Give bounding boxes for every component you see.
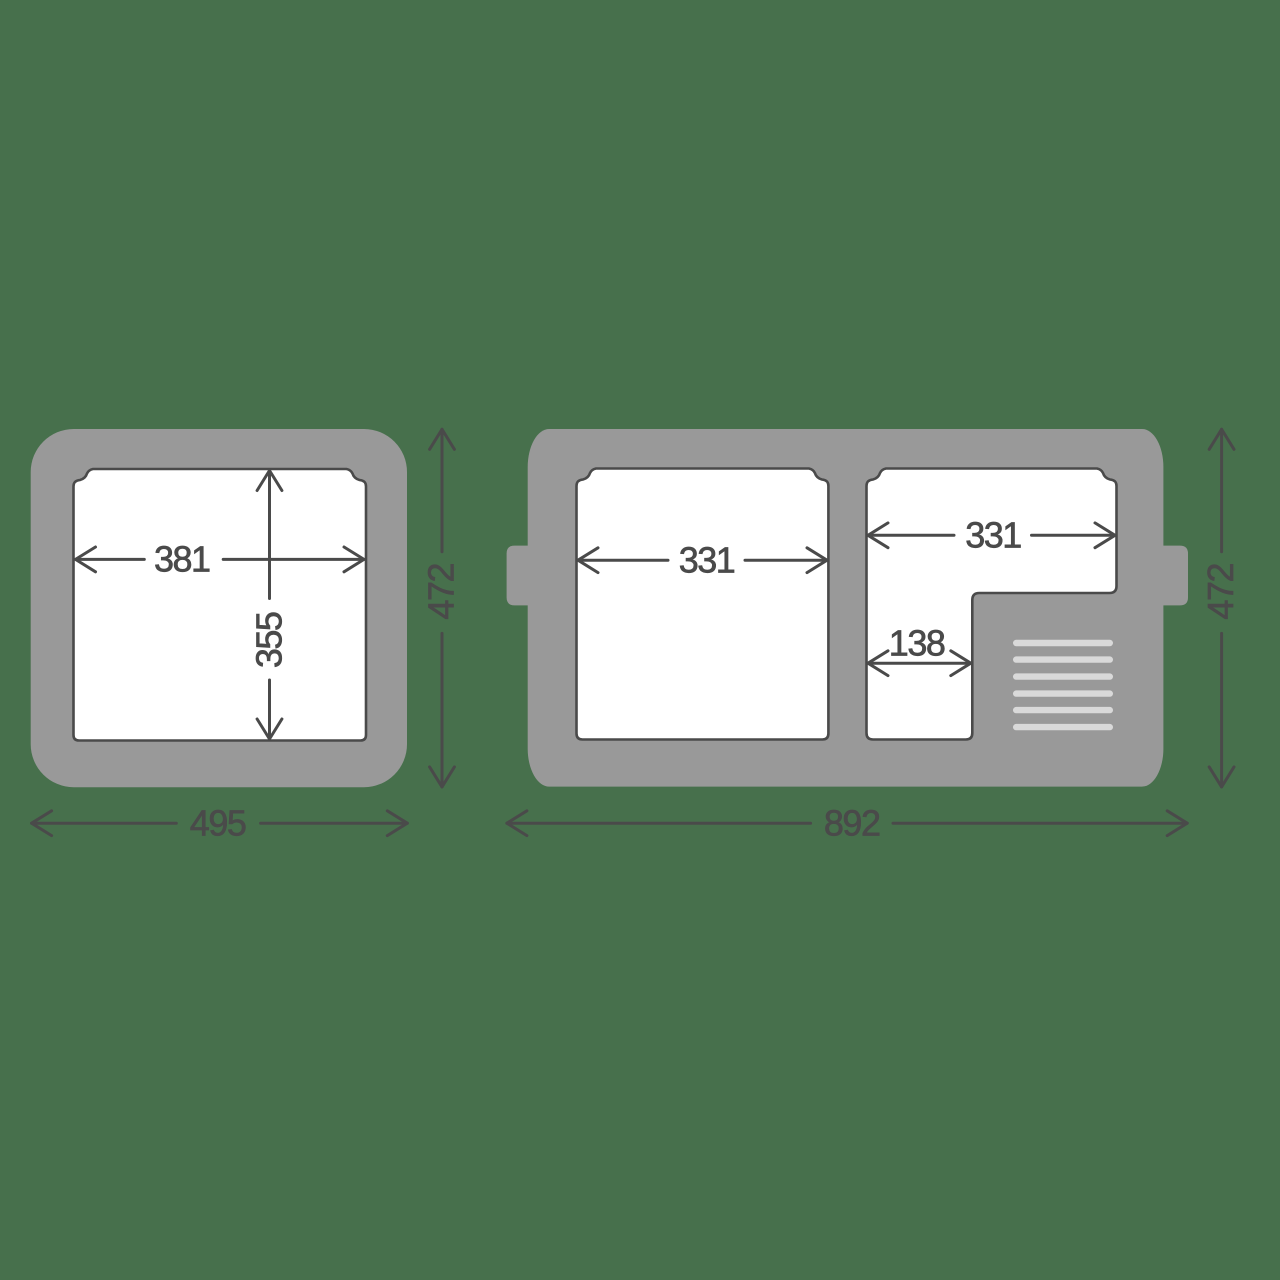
svg-text:331: 331 (965, 514, 1021, 555)
svg-text:472: 472 (1200, 564, 1241, 620)
svg-text:495: 495 (190, 802, 246, 843)
svg-text:138: 138 (889, 623, 945, 664)
svg-text:355: 355 (248, 612, 289, 668)
svg-text:472: 472 (420, 564, 461, 620)
svg-text:331: 331 (679, 539, 735, 580)
svg-text:892: 892 (824, 802, 880, 843)
svg-text:381: 381 (154, 538, 210, 579)
